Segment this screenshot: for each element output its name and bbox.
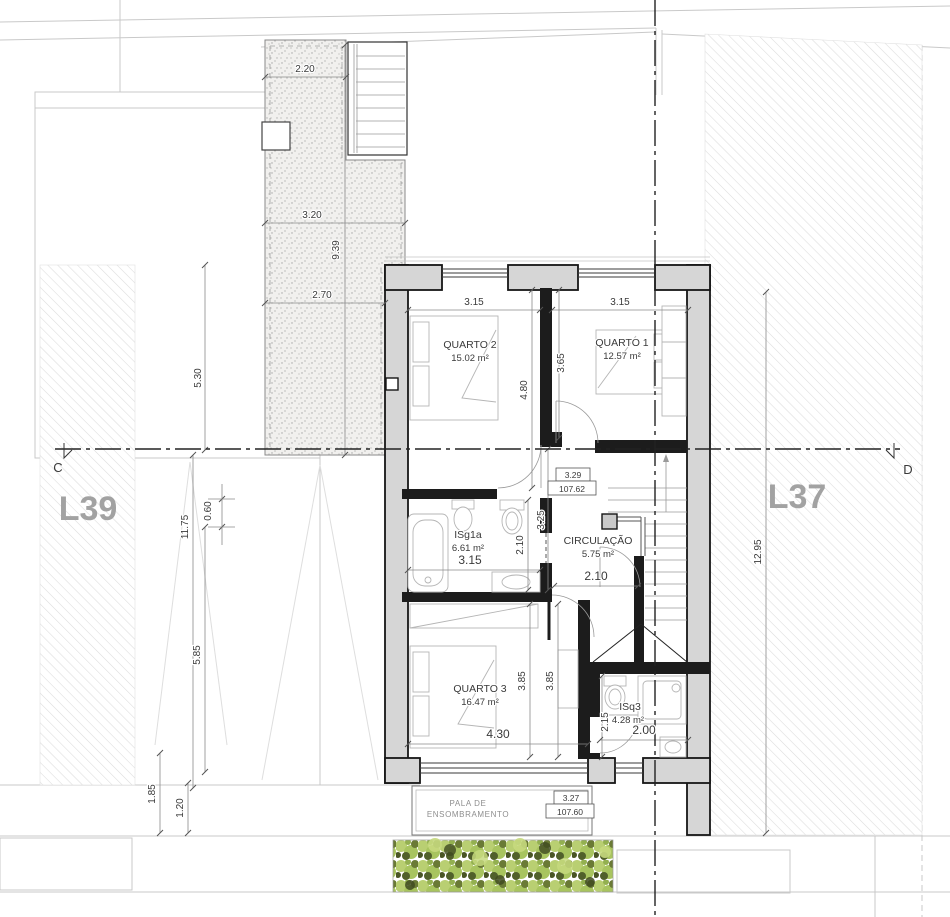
stair-newel-icon bbox=[602, 514, 617, 529]
dim-right-depth: 12.95 bbox=[753, 539, 764, 564]
dim-isg1a-width: 3.15 bbox=[458, 553, 482, 567]
room-area-isq3: 4.28 m² bbox=[612, 715, 644, 726]
dim-terrace-low: 2.70 bbox=[312, 290, 332, 301]
room-label-quarto3: QUARTO 3 bbox=[453, 683, 506, 695]
dim-quarto3-width: 4.30 bbox=[486, 727, 510, 741]
wardrobe-quarto3-icon bbox=[410, 604, 538, 628]
level-canopy-height: 3.27 bbox=[563, 793, 580, 803]
room-label-quarto2: QUARTO 2 bbox=[443, 339, 496, 351]
canopy-label-line2: ENSOMBRAMENTO bbox=[427, 810, 509, 819]
dim-quarto1-width: 3.15 bbox=[610, 297, 630, 308]
dim-circulacao-depth: 3.25 bbox=[536, 510, 547, 530]
level-floor-height: 3.29 bbox=[565, 470, 582, 480]
bathtub-icon bbox=[408, 514, 448, 592]
dim-terrace-len: 9.39 bbox=[331, 240, 342, 260]
dim-quarto3-depth-b: 3.85 bbox=[545, 671, 556, 691]
floor-plan-canvas: L39 L37 C D 2.20 3.20 2.70 9.39 5.30 11.… bbox=[0, 0, 950, 917]
dim-bottom-b: 1.20 bbox=[175, 798, 186, 818]
dim-isg1a-depth: 2.10 bbox=[515, 535, 526, 555]
room-area-quarto1: 12.57 m² bbox=[603, 351, 641, 362]
dim-isq3-depth: 2.15 bbox=[600, 712, 611, 732]
plot-label-l39: L39 bbox=[59, 490, 118, 528]
sink-isg1a-icon bbox=[492, 572, 540, 592]
plot-l37-hatch bbox=[705, 34, 922, 835]
dim-quarto2-depth: 4.80 bbox=[519, 380, 530, 400]
dim-left-upper: 5.30 bbox=[193, 368, 204, 388]
wardrobe-quarto1-icon bbox=[662, 306, 686, 416]
dim-terrace-top: 2.20 bbox=[295, 64, 315, 75]
bed-quarto2-icon bbox=[410, 316, 498, 420]
dim-quarto3-depth-a: 3.85 bbox=[517, 671, 528, 691]
dim-bottom-a: 1.85 bbox=[147, 784, 158, 804]
room-label-quarto1: QUARTO 1 bbox=[595, 337, 648, 349]
dim-quarto1-depth: 3.65 bbox=[556, 353, 567, 373]
room-area-isg1a: 6.61 m² bbox=[452, 543, 484, 554]
dim-circulacao-width: 2.10 bbox=[584, 569, 608, 583]
room-area-quarto2: 15.02 m² bbox=[451, 353, 489, 364]
shower-icon bbox=[638, 676, 686, 724]
bidet-icon bbox=[452, 500, 474, 531]
level-floor-abs: 107.62 bbox=[559, 484, 585, 494]
level-canopy-abs: 107.60 bbox=[557, 807, 583, 817]
canopy-label-line1: PALA DE bbox=[450, 799, 487, 808]
wall-vent-icon bbox=[386, 378, 398, 390]
section-label-d: D bbox=[903, 462, 912, 477]
sill-lines bbox=[385, 257, 710, 261]
room-area-quarto3: 16.47 m² bbox=[461, 697, 499, 708]
planter-icon bbox=[262, 122, 290, 150]
toilet-isg1a-icon bbox=[500, 500, 524, 534]
room-label-isq3: ISq3 bbox=[619, 701, 641, 713]
dim-left-lower: 5.85 bbox=[192, 645, 203, 665]
room-label-isg1a: ISg1a bbox=[454, 529, 482, 541]
plot-label-l37: L37 bbox=[768, 478, 827, 516]
hedge-icon bbox=[393, 838, 613, 892]
dim-terrace-mid: 3.20 bbox=[302, 210, 322, 221]
floor-plan-page: L39 L37 C D 2.20 3.20 2.70 9.39 5.30 11.… bbox=[0, 0, 950, 917]
exterior-stair-icon bbox=[348, 42, 407, 155]
room-label-circulacao: CIRCULAÇÃO bbox=[564, 534, 633, 547]
desk-quarto3-icon bbox=[558, 650, 578, 708]
dim-left-offset: 0.60 bbox=[203, 501, 214, 521]
dim-left-total: 11.75 bbox=[180, 514, 191, 539]
section-label-c: C bbox=[53, 460, 62, 475]
dim-quarto2-width: 3.15 bbox=[464, 297, 484, 308]
room-area-circulacao: 5.75 m² bbox=[582, 549, 614, 560]
